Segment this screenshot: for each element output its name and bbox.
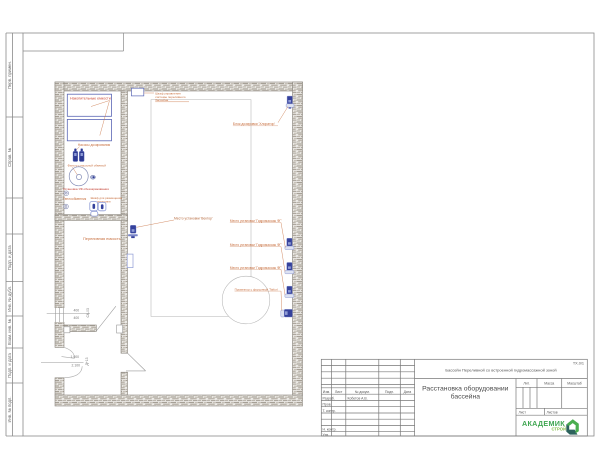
svg-text:Установка УФ обеззараживания: Установка УФ обеззараживания — [63, 187, 109, 191]
svg-text:400: 400 — [74, 308, 80, 312]
svg-text:400: 400 — [74, 316, 80, 320]
svg-text:Накопительные емкости: Накопительные емкости — [70, 97, 111, 101]
svg-text:Н. контр.: Н. контр. — [323, 428, 337, 432]
svg-text:Блок дозировки 'Хлоратор': Блок дозировки 'Хлоратор' — [233, 122, 275, 126]
svg-text:Бассейн Переливной со встроенн: Бассейн Переливной со встроенной гидрома… — [445, 368, 556, 373]
svg-text:Справ. №: Справ. № — [7, 147, 12, 167]
svg-text:1.000: 1.000 — [71, 355, 80, 359]
svg-text:Кобетов А.В.: Кобетов А.В. — [348, 396, 368, 400]
svg-text:Лист: Лист — [335, 390, 343, 394]
svg-text:Подп. и дата: Подп. и дата — [7, 352, 12, 377]
svg-text:Переливная емкость: Переливная емкость — [83, 236, 121, 241]
svg-text:Масса: Масса — [544, 382, 554, 386]
svg-text:бассейна: бассейна — [451, 393, 481, 401]
svg-text:Место установки 'Гидромассаж Ф: Место установки 'Гидромассаж ФГ' — [230, 243, 282, 247]
svg-text:Место установки 'Вектор': Место установки 'Вектор' — [174, 216, 213, 220]
svg-text:Теплообменник: Теплообменник — [63, 197, 87, 201]
svg-text:Подп. и дата: Подп. и дата — [7, 245, 12, 270]
svg-text:Лист: Лист — [519, 411, 527, 415]
svg-text:Насосы дозирования: Насосы дозирования — [78, 143, 111, 147]
svg-text:Лит.: Лит. — [523, 382, 529, 386]
svg-text:Масштаб: Масштаб — [567, 382, 582, 386]
svg-text:Утв.: Утв. — [323, 433, 330, 437]
svg-text:Расстановка оборудовании: Расстановка оборудовании — [422, 385, 509, 393]
svg-text:Изм.: Изм. — [323, 390, 330, 394]
svg-text:бассейна: бассейна — [155, 98, 168, 102]
svg-text:Подп.: Подп. — [385, 390, 394, 394]
svg-text:СК-03: СК-03 — [86, 308, 90, 317]
svg-text:Место установки 'Гидромассаж Ф: Место установки 'Гидромассаж ФГ' — [230, 266, 282, 270]
svg-text:Пров.: Пров. — [323, 403, 332, 407]
svg-text:Перв. примен.: Перв. примен. — [7, 61, 12, 89]
svg-text:Взам. инв. №: Взам. инв. № — [7, 319, 12, 345]
svg-text:Инв. № дубл.: Инв. № дубл. — [7, 286, 12, 312]
svg-text:2.100: 2.100 — [72, 363, 81, 367]
svg-text:Инв. № подл.: Инв. № подл. — [7, 396, 12, 422]
svg-text:Прожектор с форсункой 'Taifun': Прожектор с форсункой 'Taifun' — [235, 288, 279, 292]
svg-text:Дата: Дата — [404, 390, 412, 394]
svg-text:Разраб.: Разраб. — [323, 396, 335, 400]
svg-text:Фильтр с насосной обвязкой: Фильтр с насосной обвязкой — [68, 163, 107, 167]
svg-text:Место установки 'Гидромассаж Ф: Место установки 'Гидромассаж ФГ' — [230, 219, 282, 223]
svg-text:Т. контр.: Т. контр. — [323, 409, 336, 413]
svg-text:№ докум.: № докум. — [355, 390, 370, 394]
svg-text:Листов: Листов — [547, 411, 558, 415]
svg-text:СТРОЙ: СТРОЙ — [552, 427, 566, 432]
svg-text:ТХ.0/1: ТХ.0/1 — [573, 362, 584, 366]
svg-text:Д+13: Д+13 — [85, 357, 89, 365]
